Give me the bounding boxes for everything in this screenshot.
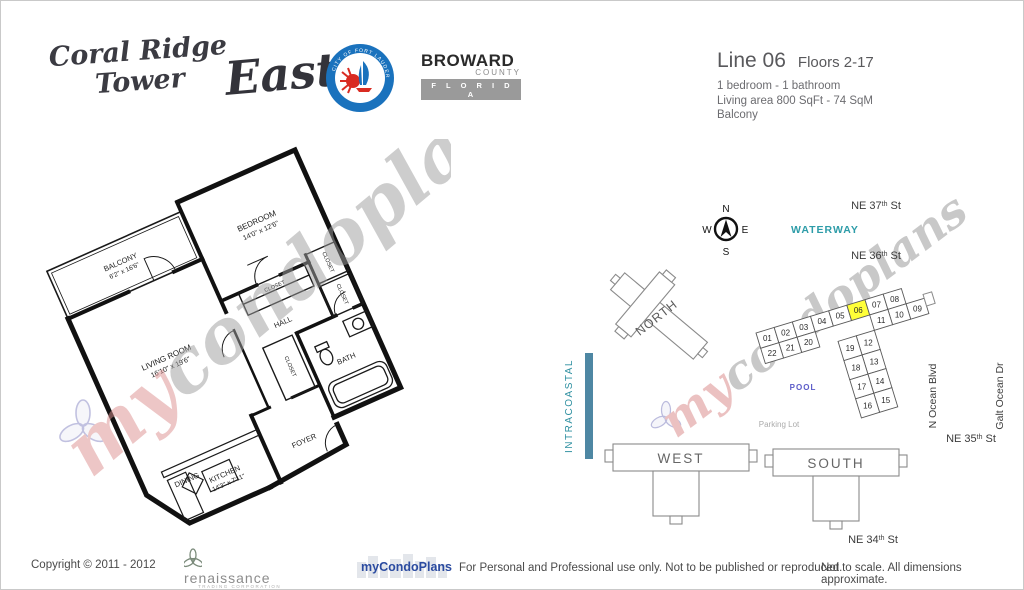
building-title: Coral Ridge Tower: [47, 31, 231, 103]
street-n-ocean-blvd: N Ocean Blvd: [927, 363, 939, 428]
living-area-info: Living area 800 SqFt - 74 SqM: [717, 94, 874, 109]
scale-note: Not to scale. All dimensions approximate…: [821, 562, 1023, 586]
svg-text:S: S: [723, 247, 730, 258]
unit-label-12: 12: [864, 339, 873, 348]
building-title-suffix: East: [223, 42, 339, 106]
broward-county-logo: BROWARD COUNTY F L O R I D A: [421, 53, 521, 100]
pool-label: POOL: [790, 383, 817, 392]
unit-label-06: 06: [854, 306, 863, 315]
unit-label-08: 08: [890, 295, 899, 304]
label-foyer: FOYER: [290, 431, 318, 450]
unit-label-21: 21: [786, 344, 795, 353]
bed-bath-info: 1 bedroom - 1 bathroom: [717, 79, 874, 94]
unit-label-20: 20: [804, 338, 813, 347]
street-ne-37th: NE 37th St: [851, 200, 901, 212]
svg-text:N: N: [722, 204, 729, 215]
street-galt-ocean-dr: Galt Ocean Dr: [994, 362, 1006, 430]
unit-label-05: 05: [836, 312, 845, 321]
unit-label-17: 17: [857, 382, 866, 391]
unit-label-15: 15: [881, 396, 890, 405]
unit-label-10: 10: [895, 310, 904, 319]
unit-label-04: 04: [817, 317, 826, 326]
unit-label-18: 18: [851, 363, 860, 372]
unit-label-09: 09: [913, 305, 922, 314]
broward-florida-bar: F L O R I D A: [421, 79, 521, 100]
unit-label-14: 14: [875, 377, 884, 386]
svg-text:W: W: [702, 225, 712, 236]
mycondoplans-brand: myCondoPlans: [361, 560, 452, 574]
svg-text:E: E: [742, 225, 749, 236]
fort-lauderdale-seal-icon: CITY OF FORT LAUDERDALE VENICE OF AMERIC…: [323, 41, 397, 120]
broward-name: BROWARD: [421, 53, 521, 68]
renaissance-flower-icon: [184, 548, 202, 570]
condo-plan-sheet: Coral Ridge Tower East CITY OF FORT LAUD…: [0, 0, 1024, 590]
building-west: WEST: [605, 444, 757, 524]
usage-note: For Personal and Professional use only. …: [459, 562, 842, 574]
street-ne-35th: NE 35th St: [946, 433, 996, 445]
unit-label-01: 01: [763, 334, 772, 343]
building-south-label: SOUTH: [807, 456, 864, 471]
unit-label-22: 22: [768, 349, 777, 358]
renaissance-logo: renaissance TRADING CORPORATION: [184, 548, 281, 589]
unit-label-02: 02: [781, 328, 790, 337]
unit-label-03: 03: [799, 323, 808, 332]
building-south: SOUTH: [765, 449, 907, 529]
label-closet-4: CLOSET: [283, 356, 298, 379]
copyright: Copyright © 2011 - 2012: [31, 559, 156, 571]
floors-range: Floors 2-17: [798, 54, 874, 71]
intracoastal-bar: [585, 353, 593, 459]
street-ne-36th: NE 36th St: [851, 250, 901, 262]
unit-info: Line 06Floors 2-17 1 bedroom - 1 bathroo…: [717, 49, 874, 123]
label-dining: DINING: [173, 470, 201, 489]
line-number: Line 06: [717, 49, 786, 72]
label-bath: BATH: [336, 351, 357, 367]
site-map: mycondoplans N S W E NE 37th St WATERWAY…: [546, 171, 1022, 586]
mycondoplans-logo: myCondoPlans: [349, 552, 459, 578]
balcony-info: Balcony: [717, 108, 874, 123]
renaissance-subtitle: TRADING CORPORATION: [198, 584, 281, 589]
intracoastal-label: INTRACOASTAL: [564, 359, 575, 453]
compass-icon: N S W E: [702, 204, 748, 258]
street-ne-34th: NE 34th St: [848, 534, 898, 546]
floor-plan: BALCONY 6'2" x 16'6" BEDROOM 14'0" x 12'…: [21, 139, 451, 549]
building-west-label: WEST: [658, 451, 705, 466]
unit-label-11: 11: [877, 316, 886, 325]
unit-label-19: 19: [846, 344, 855, 353]
unit-label-13: 13: [870, 358, 879, 367]
unit-label-16: 16: [863, 402, 872, 411]
parking-lot-label: Parking Lot: [759, 420, 800, 429]
unit-label-07: 07: [872, 301, 881, 310]
waterway-label: WATERWAY: [791, 224, 859, 236]
